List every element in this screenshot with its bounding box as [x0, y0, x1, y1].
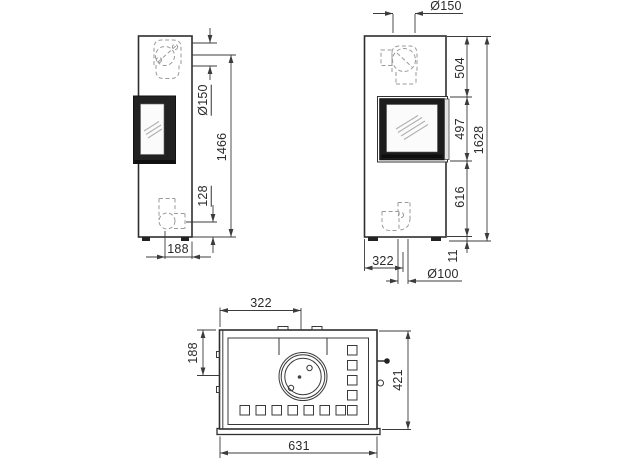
front-foot-left: [368, 237, 378, 241]
dim-front-flue-diameter: Ø150: [430, 0, 461, 12]
dim-top-flue-offset-y: 188: [187, 342, 200, 363]
front-door-glass: [387, 105, 438, 153]
dim-front-plinth-height: 11: [447, 249, 460, 262]
front-foot-right: [431, 237, 441, 241]
dim-side-rear-offset: 188: [167, 243, 188, 256]
front-door-edge: [445, 99, 450, 160]
side-foot-left: [142, 237, 150, 241]
dim-front-flue-offset: 322: [372, 255, 393, 268]
dim-top-width: 631: [288, 440, 309, 453]
dim-front-rear-flue-diameter: Ø100: [427, 268, 458, 281]
stove-dimension-drawing: Ø150 1466 128 188 Ø150 504 497 1628 616 …: [0, 0, 624, 460]
top-body: [220, 330, 378, 429]
dim-front-top-section: 504: [454, 57, 467, 78]
dim-front-door-height: 497: [454, 118, 467, 139]
side-door-glass: [141, 104, 165, 155]
dim-side-rear-outlet-height: 128: [197, 185, 212, 206]
dim-side-height-to-flue: 1466: [216, 133, 229, 162]
collar-center-mark: [298, 375, 302, 379]
dim-top-flue-offset-x: 322: [250, 297, 271, 310]
front-door: [378, 97, 450, 163]
dim-top-depth: 421: [392, 369, 405, 390]
dim-side-flue-diameter: Ø150: [197, 84, 212, 115]
dim-front-lower-section: 616: [454, 186, 467, 207]
top-door-handle: [378, 358, 390, 386]
dim-front-total-height: 1628: [473, 126, 486, 155]
side-door-window: [134, 96, 176, 164]
drawing-canvas: [0, 0, 624, 460]
side-foot-right: [181, 237, 189, 241]
top-latch: [378, 380, 384, 386]
top-view: [197, 308, 411, 459]
